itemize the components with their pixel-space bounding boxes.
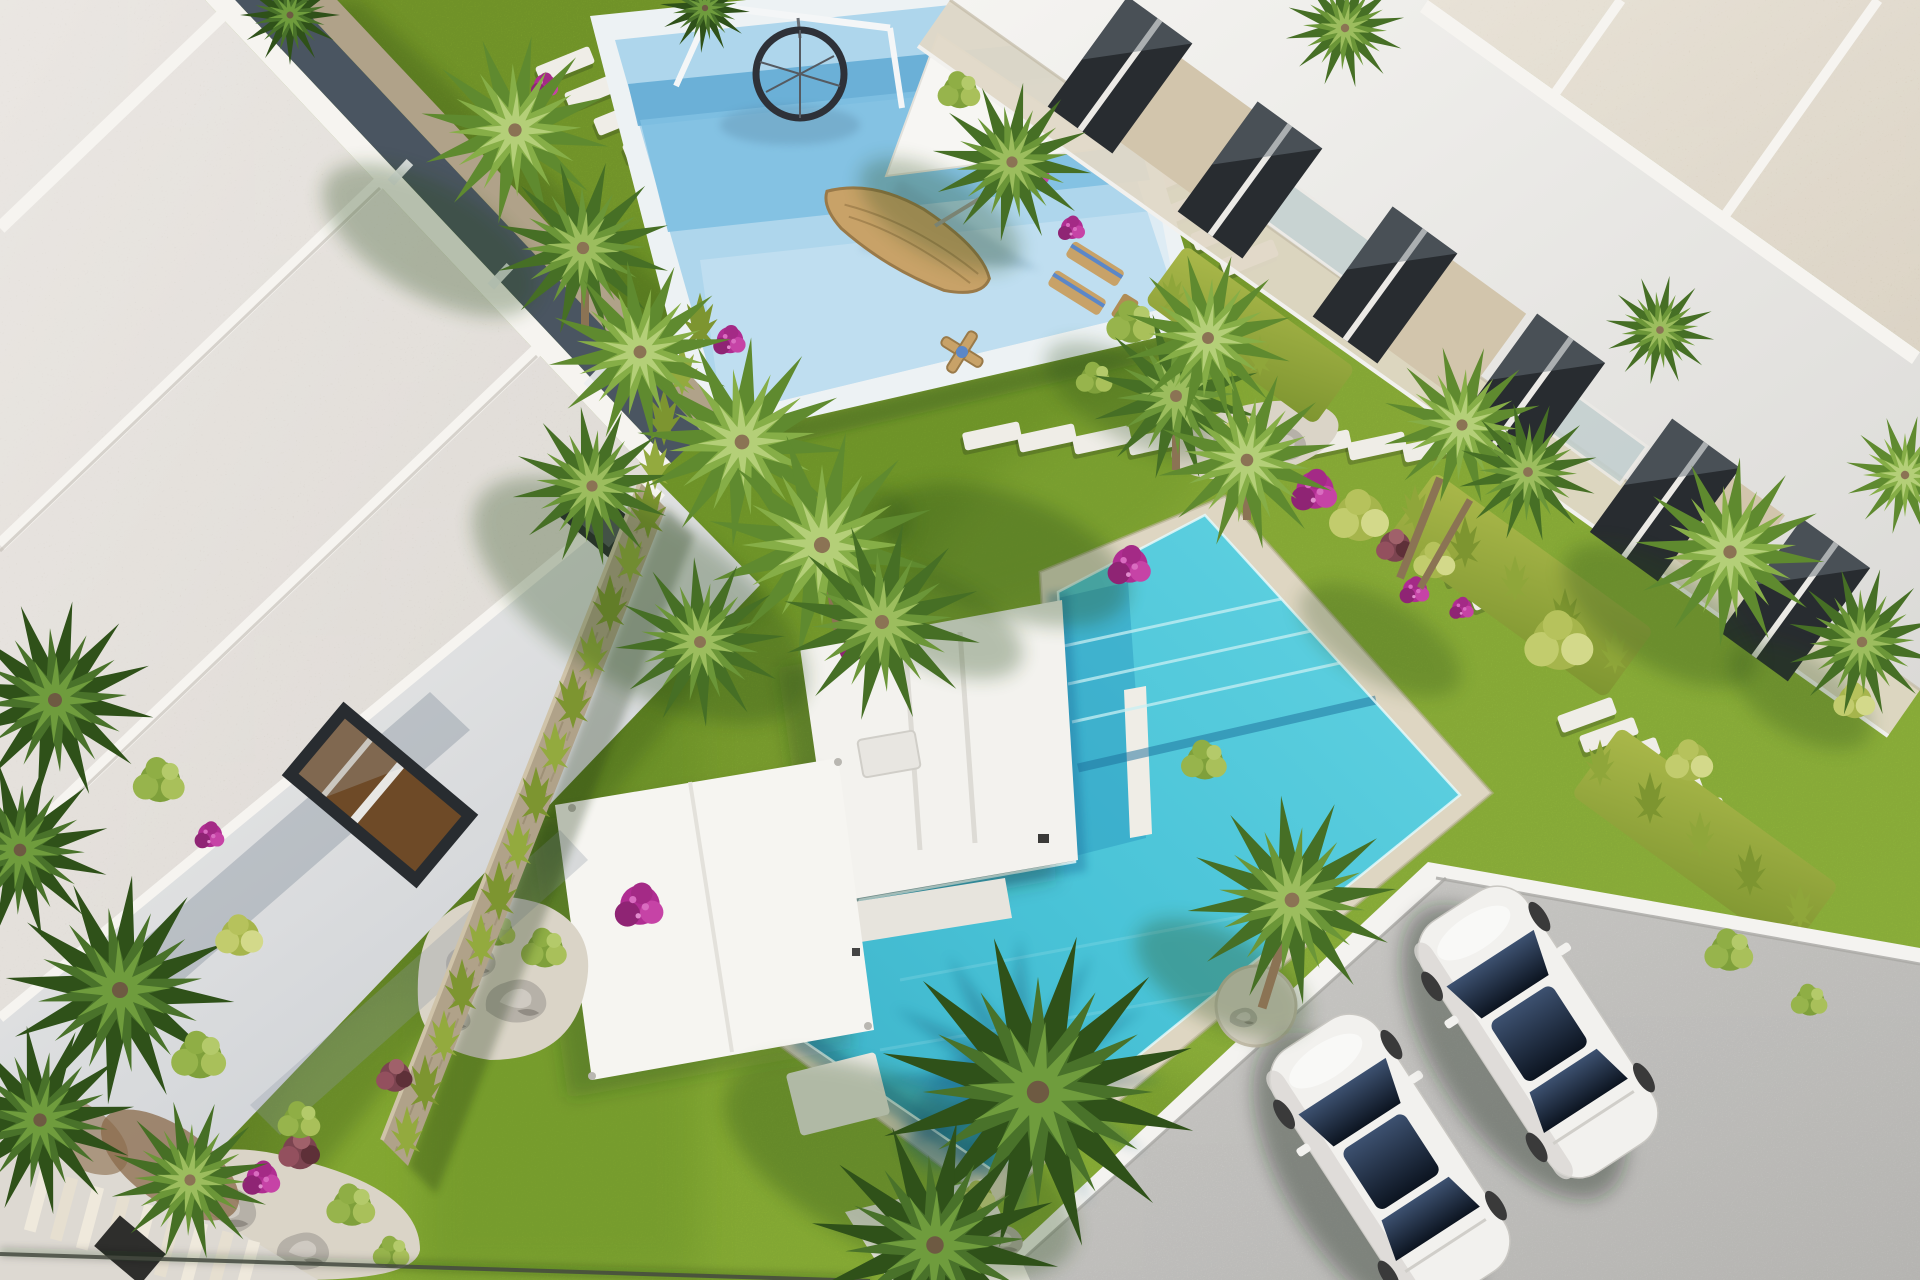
sail-post <box>834 758 842 766</box>
pool-ladder-fitting <box>1038 834 1049 843</box>
deck-fitting <box>852 948 860 956</box>
swing-shadow <box>720 105 860 145</box>
sail-post <box>864 1022 872 1030</box>
render-canvas <box>0 0 1920 1280</box>
sail-post <box>588 1072 596 1080</box>
aerial-render-scene <box>0 0 1920 1280</box>
lower-shade-sail <box>555 758 874 1080</box>
